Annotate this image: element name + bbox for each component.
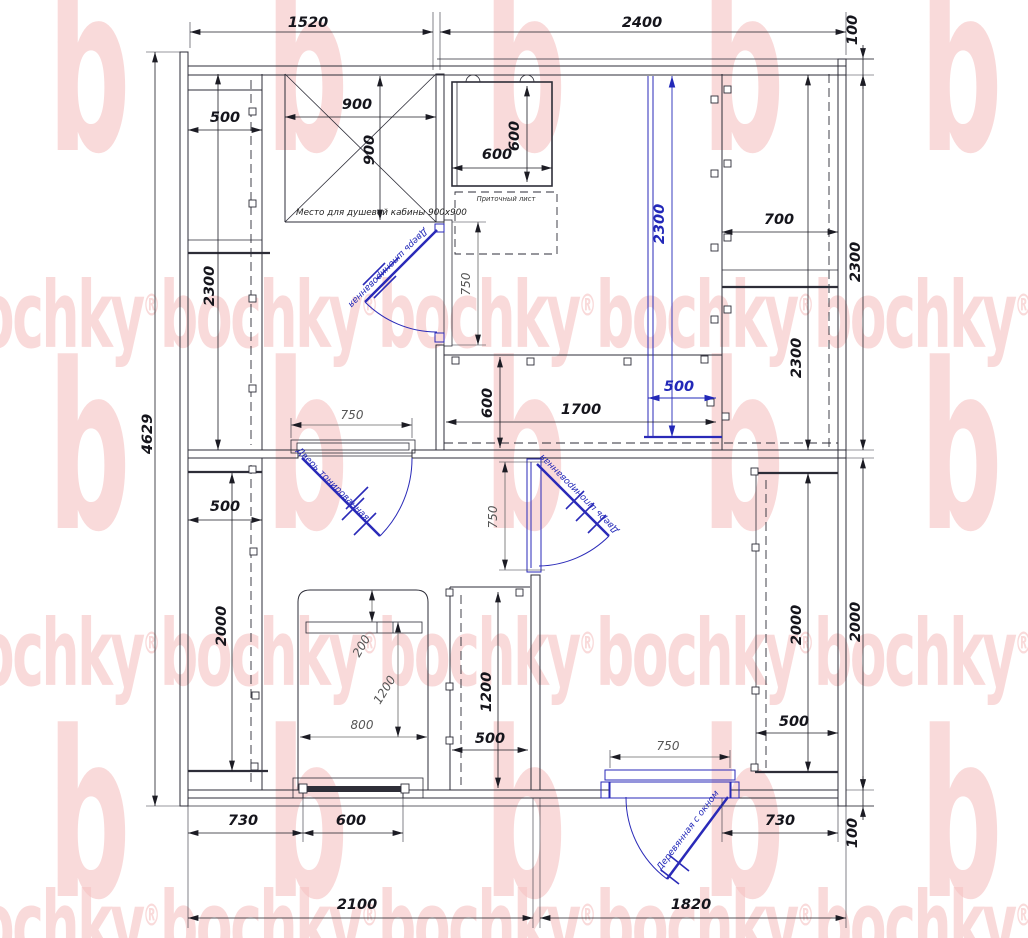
dim-bed-width: 800 — [351, 718, 374, 732]
dim-bottom-wall-thickness: 100 — [845, 818, 861, 848]
dim-right-upper: 2300 — [848, 242, 864, 282]
annotation-labels: Место для душевой кабины 900х900 Приточн… — [293, 195, 722, 873]
vent-note: Приточный лист — [477, 195, 537, 203]
dim-closet-width: 500 — [475, 731, 505, 747]
steam-shelves — [444, 74, 838, 450]
dim-door-top-width: 750 — [459, 272, 473, 295]
dim-top-left-span: 1520 — [288, 15, 328, 31]
dim-shower-width: 900 — [342, 97, 372, 113]
dim-top-wall-thickness: 100 — [845, 15, 861, 45]
dim-rest-bench-length: 2000 — [214, 606, 230, 646]
door-mid-label: Дверь шпонированная — [538, 451, 622, 535]
door-entrance-label: Деревянная с окном — [655, 789, 722, 873]
dim-door-mid-width: 750 — [486, 505, 500, 528]
dim-door-entry-width: 750 — [657, 739, 680, 753]
dim-door-tinted-width: 750 — [341, 408, 364, 422]
dim-shelf-depth: 700 — [764, 212, 794, 228]
dim-hall-closet-depth: 500 — [779, 714, 809, 730]
dim-wash-bench-length: 2300 — [202, 266, 218, 306]
bed — [298, 590, 428, 790]
floor-plan-canvas: bbbbbbochky®bochky®bochky®bochky®bochky®… — [0, 0, 1028, 938]
dim-bottom-right-span: 1820 — [671, 897, 711, 913]
dim-stove-depth: 600 — [507, 121, 523, 151]
dimension-labels: 1520 2400 100 4629 2300 2000 100 500 230… — [140, 15, 864, 913]
shower-note: Место для душевой кабины 900х900 — [296, 208, 467, 218]
stove — [452, 75, 552, 186]
dim-window-offset: 730 — [228, 813, 258, 829]
dim-closet-length: 1200 — [479, 672, 495, 712]
dim-bed-head-offset: 200 — [350, 632, 374, 659]
dim-hall-closet-length: 2000 — [789, 605, 805, 645]
door-top-label: Дверь шпонированная — [345, 225, 429, 309]
dim-upper-shelf-width-blue: 500 — [664, 379, 694, 395]
dim-shower-depth: 900 — [362, 135, 378, 165]
dim-shelf-length: 2300 — [789, 338, 805, 378]
dim-bed-length: 1200 — [371, 673, 399, 707]
dim-right-lower: 2000 — [848, 602, 864, 642]
dim-bottom-left-span: 2100 — [337, 897, 377, 913]
floor-plan-drawing: 1520 2400 100 4629 2300 2000 100 500 230… — [0, 0, 1028, 938]
interior-walls — [188, 74, 846, 790]
dim-rest-bench-width: 500 — [210, 499, 240, 515]
dim-steam-length-blue: 2300 — [652, 204, 668, 244]
dim-door-offset: 730 — [765, 813, 795, 829]
door-entrance — [601, 770, 739, 884]
dim-bench-depth: 600 — [480, 388, 496, 418]
dim-window-width: 600 — [336, 813, 366, 829]
dim-left-total: 4629 — [140, 414, 156, 455]
dim-wash-bench-width: 500 — [210, 110, 240, 126]
door-tinted-label: Дверь тонированная — [293, 445, 371, 523]
dim-top-right-span: 2400 — [622, 15, 662, 31]
dim-bench-length: 1700 — [561, 402, 601, 418]
